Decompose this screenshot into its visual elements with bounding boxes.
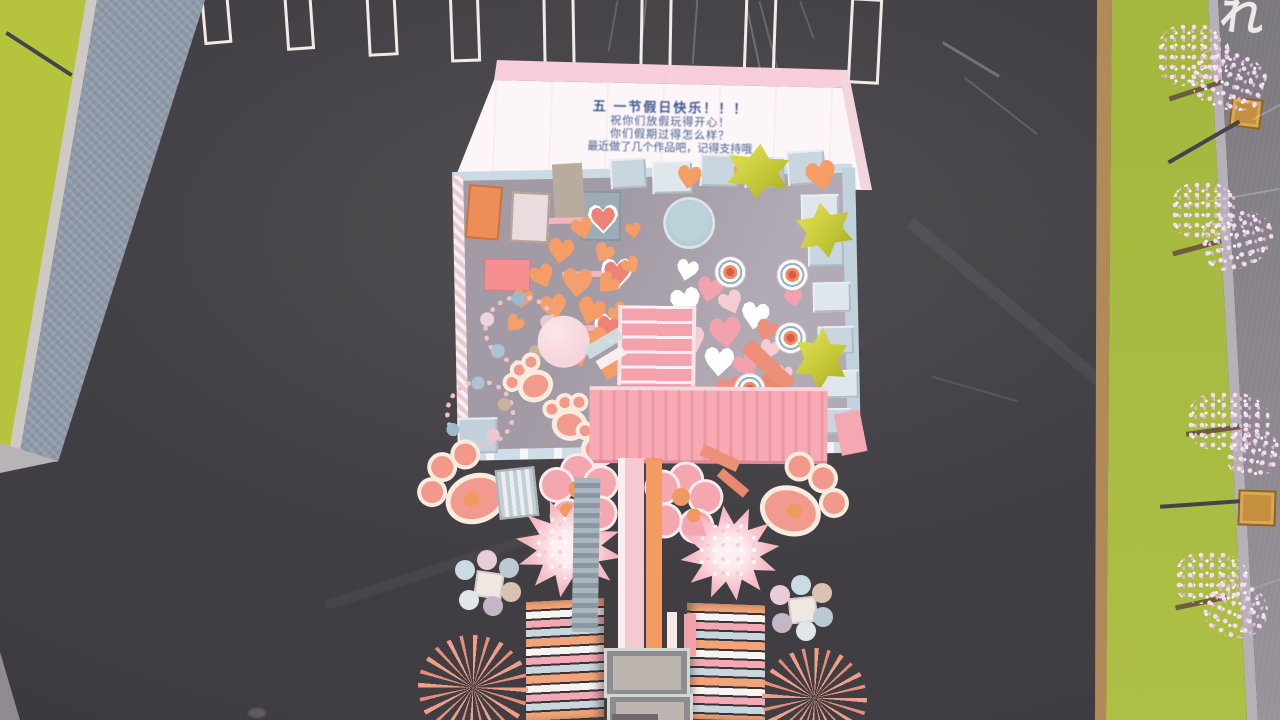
road-stop-marking: れ bbox=[1217, 0, 1266, 41]
shaft-bar-pink bbox=[618, 458, 644, 658]
ground-smudge bbox=[248, 708, 266, 718]
paw-toe bbox=[809, 465, 837, 493]
road-marking-glyph: れ bbox=[1217, 0, 1267, 43]
cluster-ball bbox=[483, 596, 503, 616]
parking-line bbox=[449, 0, 481, 63]
street-sign-box bbox=[1237, 489, 1276, 526]
bead bbox=[491, 344, 505, 358]
paw-toe bbox=[573, 396, 585, 408]
cluster-ball bbox=[796, 621, 816, 641]
bead bbox=[446, 423, 459, 436]
paw-toe bbox=[820, 489, 848, 517]
bloom-speckle bbox=[698, 522, 762, 582]
game-aerial-scene: れ 五 一节假日快乐！！！ 祝你们放假玩得开心！ 你们假期过得怎么样？ 最近做了… bbox=[0, 0, 1280, 720]
orange-mat bbox=[465, 184, 503, 241]
paw-toe bbox=[428, 453, 456, 481]
pink-ladder bbox=[617, 305, 696, 386]
pastel-block bbox=[812, 282, 851, 313]
bead bbox=[480, 312, 494, 326]
paw-toe bbox=[559, 396, 571, 408]
corner-block bbox=[0, 0, 210, 480]
ball-cluster bbox=[770, 575, 832, 643]
cluster-ball bbox=[455, 560, 475, 580]
striped-container bbox=[494, 466, 539, 520]
decorated-deck bbox=[452, 159, 864, 467]
bead bbox=[498, 398, 511, 411]
cluster-ball bbox=[459, 590, 479, 610]
slab-tower bbox=[687, 603, 765, 720]
cluster-ball bbox=[477, 550, 497, 570]
cluster-ball bbox=[791, 575, 811, 595]
cluster-ball bbox=[499, 558, 519, 578]
paw-toe bbox=[418, 478, 446, 506]
white-mat bbox=[510, 191, 550, 243]
cluster-ball bbox=[812, 583, 832, 603]
bead bbox=[471, 376, 484, 389]
cluster-ball bbox=[813, 607, 833, 627]
shaft-bar-orange bbox=[646, 458, 662, 658]
base-mat bbox=[604, 648, 690, 698]
cluster-ball bbox=[772, 613, 792, 633]
salmon-mat bbox=[484, 259, 530, 292]
ball-cluster bbox=[455, 550, 521, 618]
wood-beam bbox=[552, 163, 585, 223]
base-step bbox=[612, 714, 658, 720]
parking-line bbox=[283, 0, 315, 51]
paw-toe bbox=[546, 403, 558, 415]
base-mat-inner bbox=[613, 656, 681, 690]
parking-line bbox=[365, 0, 398, 57]
cluster-ball bbox=[770, 585, 790, 605]
bead bbox=[512, 291, 526, 305]
pastel-block bbox=[609, 157, 647, 189]
cluster-ball bbox=[501, 582, 521, 602]
stair-strip bbox=[572, 478, 601, 632]
